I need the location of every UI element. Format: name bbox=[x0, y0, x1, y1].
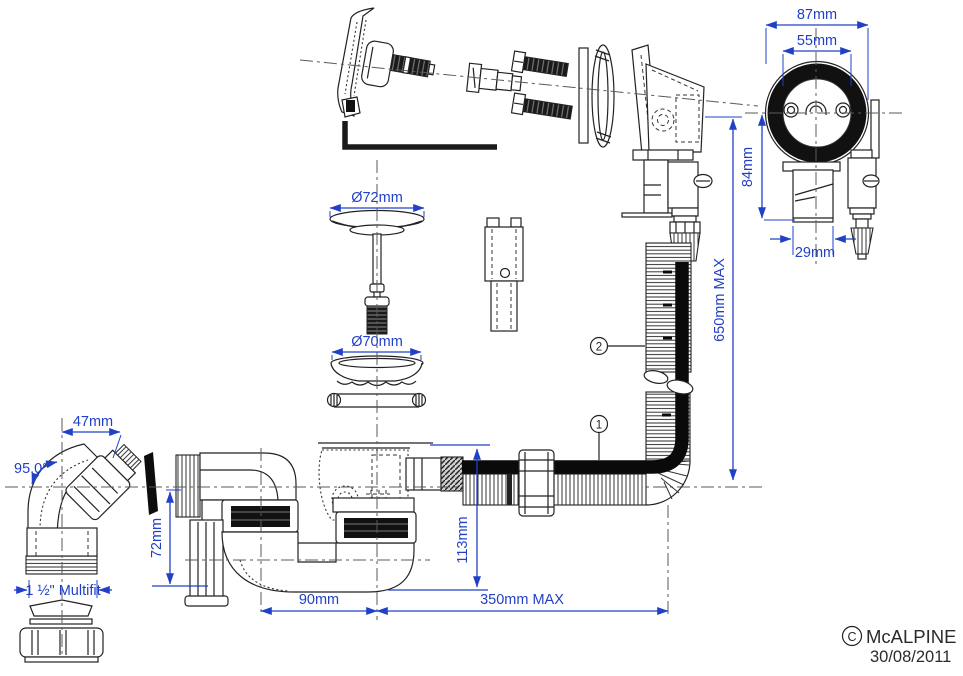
front-valve bbox=[848, 150, 879, 259]
brand-name: McALPINE bbox=[866, 626, 956, 647]
diagram-canvas: 87mm 55mm 84mm 29mm Ø72mm Ø70mm 47mm 95.… bbox=[0, 0, 963, 676]
overflow-gasket bbox=[592, 45, 614, 147]
bath-waste-technical-diagram: 87mm 55mm 84mm 29mm Ø72mm Ø70mm 47mm 95.… bbox=[0, 0, 963, 676]
dim-front-outer-width: 87mm bbox=[797, 7, 837, 23]
callout-1-number: 1 bbox=[596, 420, 602, 432]
compression-ring bbox=[30, 619, 92, 624]
overflow-valve bbox=[668, 162, 698, 208]
overflow-knob bbox=[360, 40, 394, 88]
dim-front-inner-width: 55mm bbox=[797, 33, 837, 49]
dim-elbow-thread: 1 ½" Multifit bbox=[25, 583, 100, 599]
trap-inlet-tail bbox=[176, 455, 200, 517]
dim-front-height: 84mm bbox=[740, 147, 756, 187]
overflow-faceplate-exploded bbox=[338, 8, 658, 154]
dim-trap-seal-height: 72mm bbox=[149, 518, 165, 558]
dim-trap-length: 90mm bbox=[299, 592, 339, 608]
control-shaft bbox=[390, 55, 435, 78]
overflow-tube bbox=[644, 160, 668, 213]
dim-overflow-hose-height: 650mm MAX bbox=[712, 258, 728, 342]
screw-boss-left bbox=[784, 103, 798, 117]
callout-2: 2 bbox=[591, 338, 646, 355]
dim-elbow-offset: 47mm bbox=[73, 414, 113, 430]
callout-1: 1 bbox=[591, 416, 608, 461]
compression-cone bbox=[30, 600, 92, 616]
dimensions: 87mm 55mm 84mm 29mm Ø72mm Ø70mm 47mm 95.… bbox=[14, 7, 868, 611]
fixing-screw-upper bbox=[512, 51, 569, 79]
outlet-compression-nut bbox=[441, 457, 463, 491]
dim-plug-cap: Ø72mm bbox=[351, 190, 403, 206]
allen-key bbox=[345, 121, 497, 147]
bath-trap bbox=[176, 443, 463, 606]
trap-outlet-spigot bbox=[406, 458, 441, 490]
dim-elbow-angle: 95.0° bbox=[14, 461, 48, 477]
dim-trap-outlet-height: 113mm bbox=[455, 516, 471, 563]
overflow-front-view bbox=[766, 62, 880, 260]
screw-boss-right bbox=[836, 103, 850, 117]
side-plate bbox=[871, 100, 879, 158]
title-block: C McALPINE 30/08/2011 bbox=[843, 626, 957, 666]
dim-trap-extension: 350mm MAX bbox=[480, 592, 564, 608]
hose-union bbox=[519, 450, 554, 516]
callout-2-number: 2 bbox=[596, 342, 602, 354]
drawing-date: 30/08/2011 bbox=[870, 648, 951, 666]
copyright-symbol: C bbox=[847, 630, 856, 644]
overflow-sleeve bbox=[485, 218, 523, 331]
bath-gasket bbox=[144, 452, 158, 515]
fixing-screw-lower bbox=[512, 93, 573, 122]
dim-front-outlet-width: 29mm bbox=[795, 245, 835, 261]
dim-plug-flange: Ø70mm bbox=[351, 334, 403, 350]
backing-plate bbox=[579, 48, 588, 143]
front-outlet bbox=[793, 170, 833, 222]
